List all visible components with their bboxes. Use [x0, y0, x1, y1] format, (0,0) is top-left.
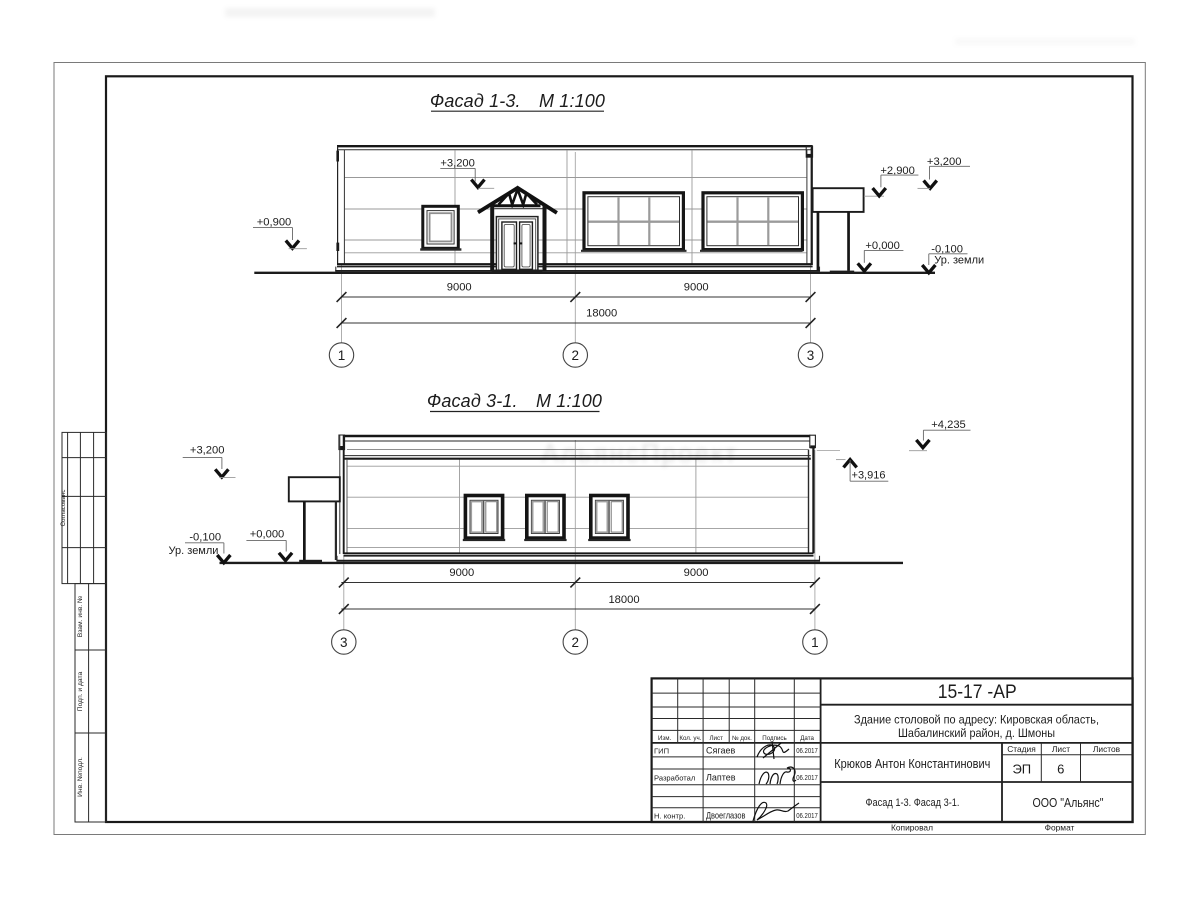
svg-text:1: 1 [811, 635, 819, 650]
svg-text:Фасад 1-3. Фасад 3-1.: Фасад 1-3. Фасад 3-1. [866, 797, 960, 809]
svg-text:ГИП: ГИП [654, 747, 669, 756]
svg-text:Фасад 3-1. М 1:100: Фасад 3-1. М 1:100 [427, 391, 602, 411]
svg-text:2: 2 [572, 635, 580, 650]
svg-text:-0,100: -0,100 [189, 532, 221, 544]
svg-text:ООО "Альянс": ООО "Альянс" [1033, 796, 1104, 810]
svg-text:ЭП: ЭП [1012, 762, 1031, 777]
svg-text:Сягаев: Сягаев [706, 746, 735, 756]
svg-text:3: 3 [807, 348, 815, 363]
svg-text:06.2017: 06.2017 [796, 748, 818, 755]
svg-text:Дата: Дата [800, 735, 814, 742]
svg-text:Кол. уч.: Кол. уч. [679, 735, 701, 742]
svg-text:9000: 9000 [684, 567, 709, 579]
svg-text:Разработал: Разработал [654, 774, 695, 783]
svg-text:Подп. и дата: Подп. и дата [77, 672, 84, 712]
svg-text:Шабалинский район, д. Шмоны: Шабалинский район, д. Шмоны [898, 726, 1055, 740]
svg-text:+3,200: +3,200 [440, 158, 475, 170]
svg-text:1: 1 [338, 348, 346, 363]
svg-text:Стадия: Стадия [1007, 744, 1036, 754]
svg-text:9000: 9000 [449, 567, 474, 579]
svg-text:Изм.: Изм. [658, 735, 672, 742]
svg-text:18000: 18000 [608, 594, 639, 606]
svg-text:6: 6 [1057, 762, 1064, 777]
svg-text:3: 3 [340, 635, 348, 650]
svg-text:Согласованс: Согласованс [60, 490, 67, 527]
svg-text:Здание столовой по адресу: Кир: Здание столовой по адресу: Кировская обл… [854, 713, 1099, 727]
svg-text:№ док.: № док. [732, 735, 752, 742]
svg-text:Лист: Лист [1052, 744, 1070, 754]
svg-text:9000: 9000 [447, 282, 472, 294]
svg-text:+0,900: +0,900 [257, 217, 292, 229]
svg-text:9000: 9000 [684, 282, 709, 294]
svg-text:+4,235: +4,235 [931, 419, 966, 431]
svg-text:Лист: Лист [709, 735, 723, 742]
svg-text:Взам. инв. №: Взам. инв. № [77, 596, 84, 637]
svg-text:Копировал: Копировал [891, 823, 933, 833]
svg-text:Ур. земли: Ур. земли [169, 545, 219, 557]
svg-text:+0,000: +0,000 [250, 529, 285, 541]
svg-text:+3,200: +3,200 [190, 445, 225, 457]
svg-text:Н. контр.: Н. контр. [654, 812, 685, 821]
svg-text:Фасад 1-3. М 1:100: Фасад 1-3. М 1:100 [430, 91, 605, 111]
svg-text:Подпись: Подпись [762, 735, 787, 742]
svg-text:Двоеглазов: Двоеглазов [706, 811, 746, 821]
svg-text:Лаптев: Лаптев [706, 773, 736, 783]
svg-text:Формат: Формат [1045, 823, 1075, 833]
svg-text:+3,916: +3,916 [852, 470, 886, 482]
svg-text:06.2017: 06.2017 [796, 813, 818, 820]
svg-text:Инв. №подл.: Инв. №подл. [77, 757, 84, 797]
svg-text:Крюков Антон Константинович: Крюков Антон Константинович [834, 757, 990, 771]
svg-text:15-17 -АР: 15-17 -АР [938, 681, 1017, 703]
svg-text:АльянсПроект: АльянсПроект [541, 438, 738, 468]
svg-text:Листов: Листов [1093, 744, 1121, 754]
svg-text:2: 2 [572, 348, 580, 363]
svg-text:18000: 18000 [586, 308, 617, 320]
svg-text:Ур. земли: Ур. земли [934, 255, 984, 267]
svg-text:06.2017: 06.2017 [796, 775, 818, 782]
